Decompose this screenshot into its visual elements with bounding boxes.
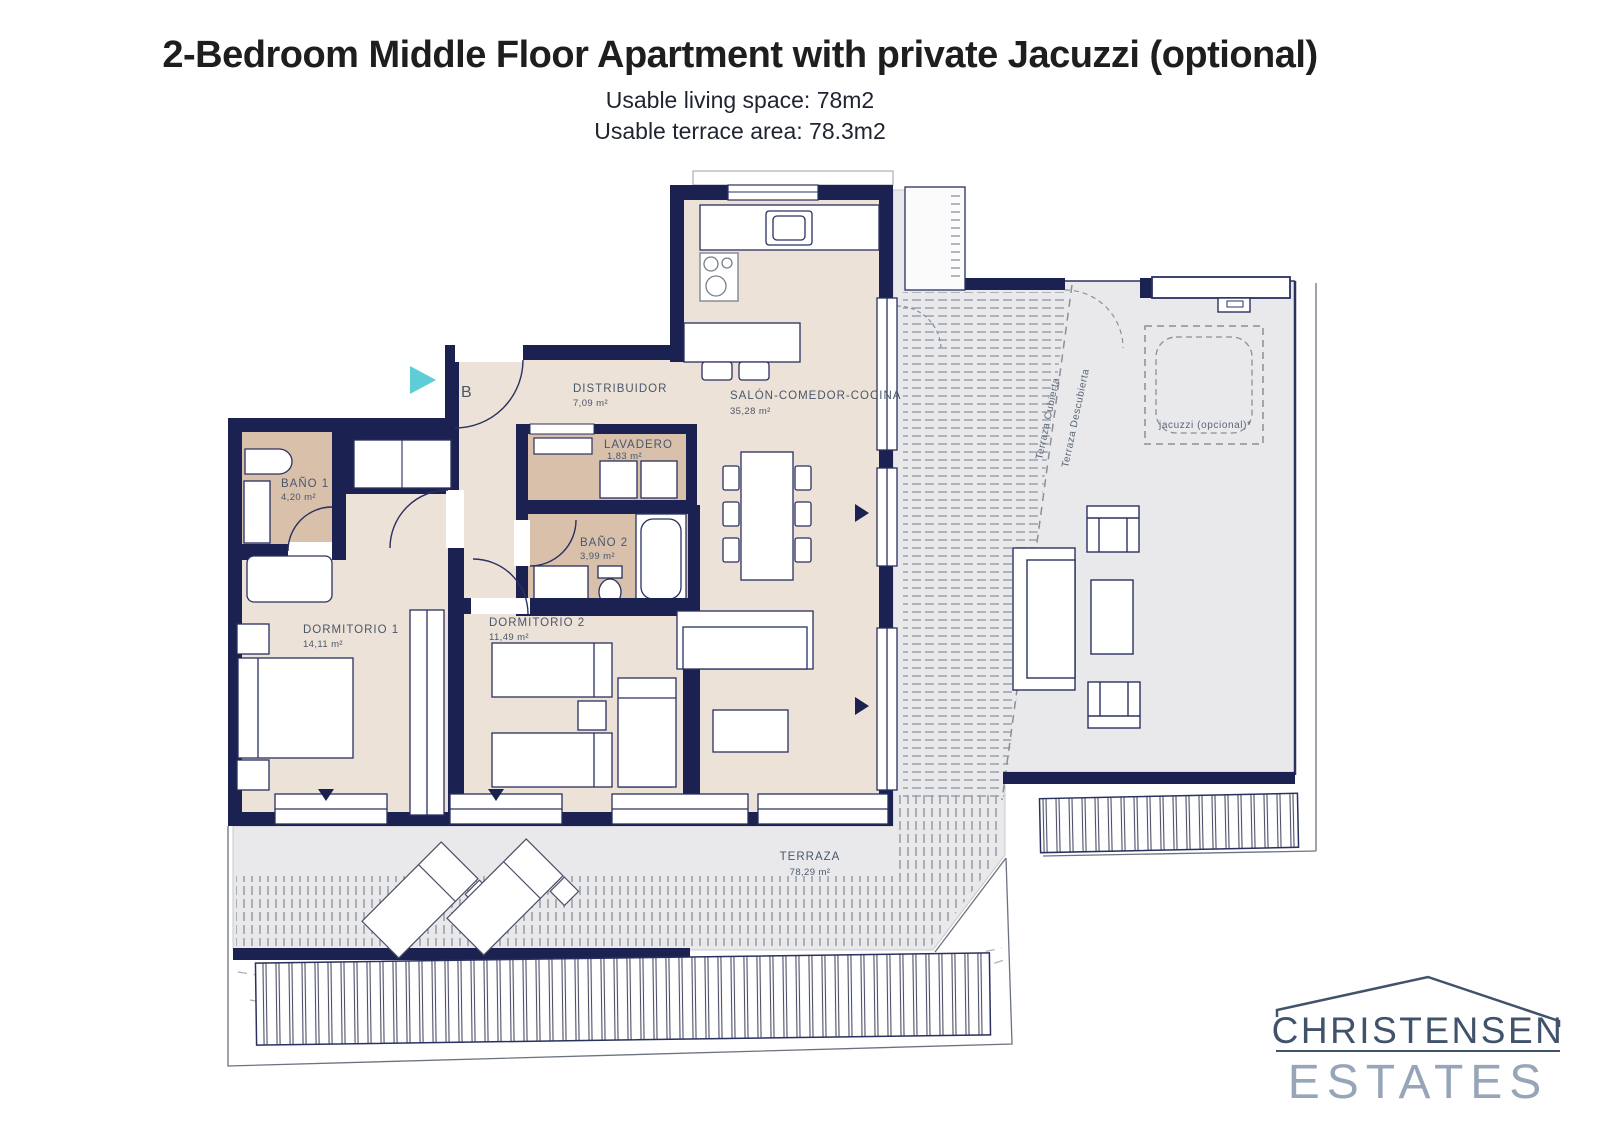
- svg-text:1,83 m²: 1,83 m²: [607, 451, 642, 462]
- unit-label: B: [461, 384, 472, 401]
- svg-text:SALÓN-COMEDOR-COCINA: SALÓN-COMEDOR-COCINA: [730, 389, 901, 402]
- svg-text:7,09 m²: 7,09 m²: [573, 398, 608, 409]
- svg-text:DORMITORIO 1: DORMITORIO 1: [303, 624, 399, 636]
- logo-line1: CHRISTENSEN: [1272, 1010, 1565, 1051]
- railing-right: [1039, 793, 1298, 852]
- svg-text:DORMITORIO 2: DORMITORIO 2: [489, 617, 585, 629]
- right-wall-windows: [877, 298, 897, 790]
- jacuzzi-label: jacuzzi (opcional)*: [1158, 420, 1252, 431]
- christensen-estates-logo: CHRISTENSEN ESTATES: [1272, 977, 1565, 1109]
- logo-line2: ESTATES: [1288, 1056, 1549, 1109]
- svg-text:TERRAZA: TERRAZA: [780, 851, 841, 863]
- svg-text:BAÑO 2: BAÑO 2: [580, 536, 628, 549]
- svg-text:3,99 m²: 3,99 m²: [580, 551, 615, 562]
- svg-text:35,28 m²: 35,28 m²: [730, 406, 771, 417]
- apartment: B DISTRIBUIDOR 7,09 m² SALÓN-COMEDOR-COC…: [228, 185, 941, 826]
- dining-table: [723, 452, 811, 580]
- railing-bottom: [255, 953, 990, 1045]
- entrance-arrow-icon: [410, 366, 436, 394]
- svg-text:BAÑO 1: BAÑO 1: [281, 477, 329, 490]
- svg-text:LAVADERO: LAVADERO: [604, 439, 673, 451]
- floor-plan: jacuzzi (opcional)*: [0, 0, 1600, 1131]
- svg-text:4,20 m²: 4,20 m²: [281, 492, 316, 503]
- roof-overhang: [693, 171, 893, 185]
- svg-text:14,11 m²: 14,11 m²: [303, 639, 343, 650]
- svg-text:11,49 m²: 11,49 m²: [489, 632, 529, 643]
- svg-text:DISTRIBUIDOR: DISTRIBUIDOR: [573, 383, 667, 395]
- svg-text:78,29 m²: 78,29 m²: [790, 867, 831, 878]
- entrance-door-gap: [455, 343, 523, 362]
